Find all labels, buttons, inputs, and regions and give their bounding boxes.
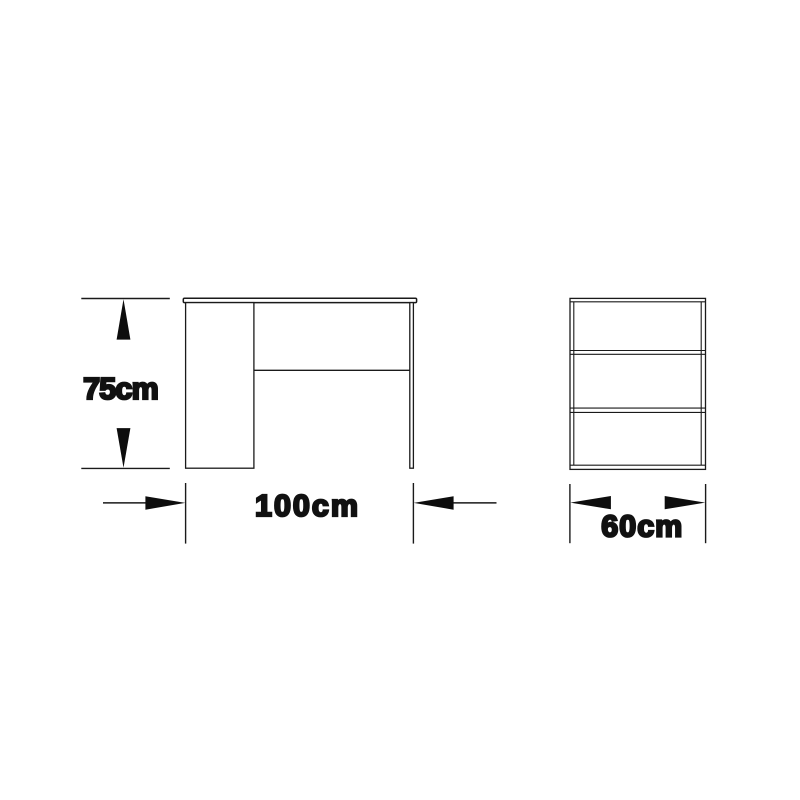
svg-text:60cm: 60cm <box>601 510 683 544</box>
svg-text:100cm: 100cm <box>255 489 360 523</box>
svg-text:75cm: 75cm <box>83 372 158 406</box>
